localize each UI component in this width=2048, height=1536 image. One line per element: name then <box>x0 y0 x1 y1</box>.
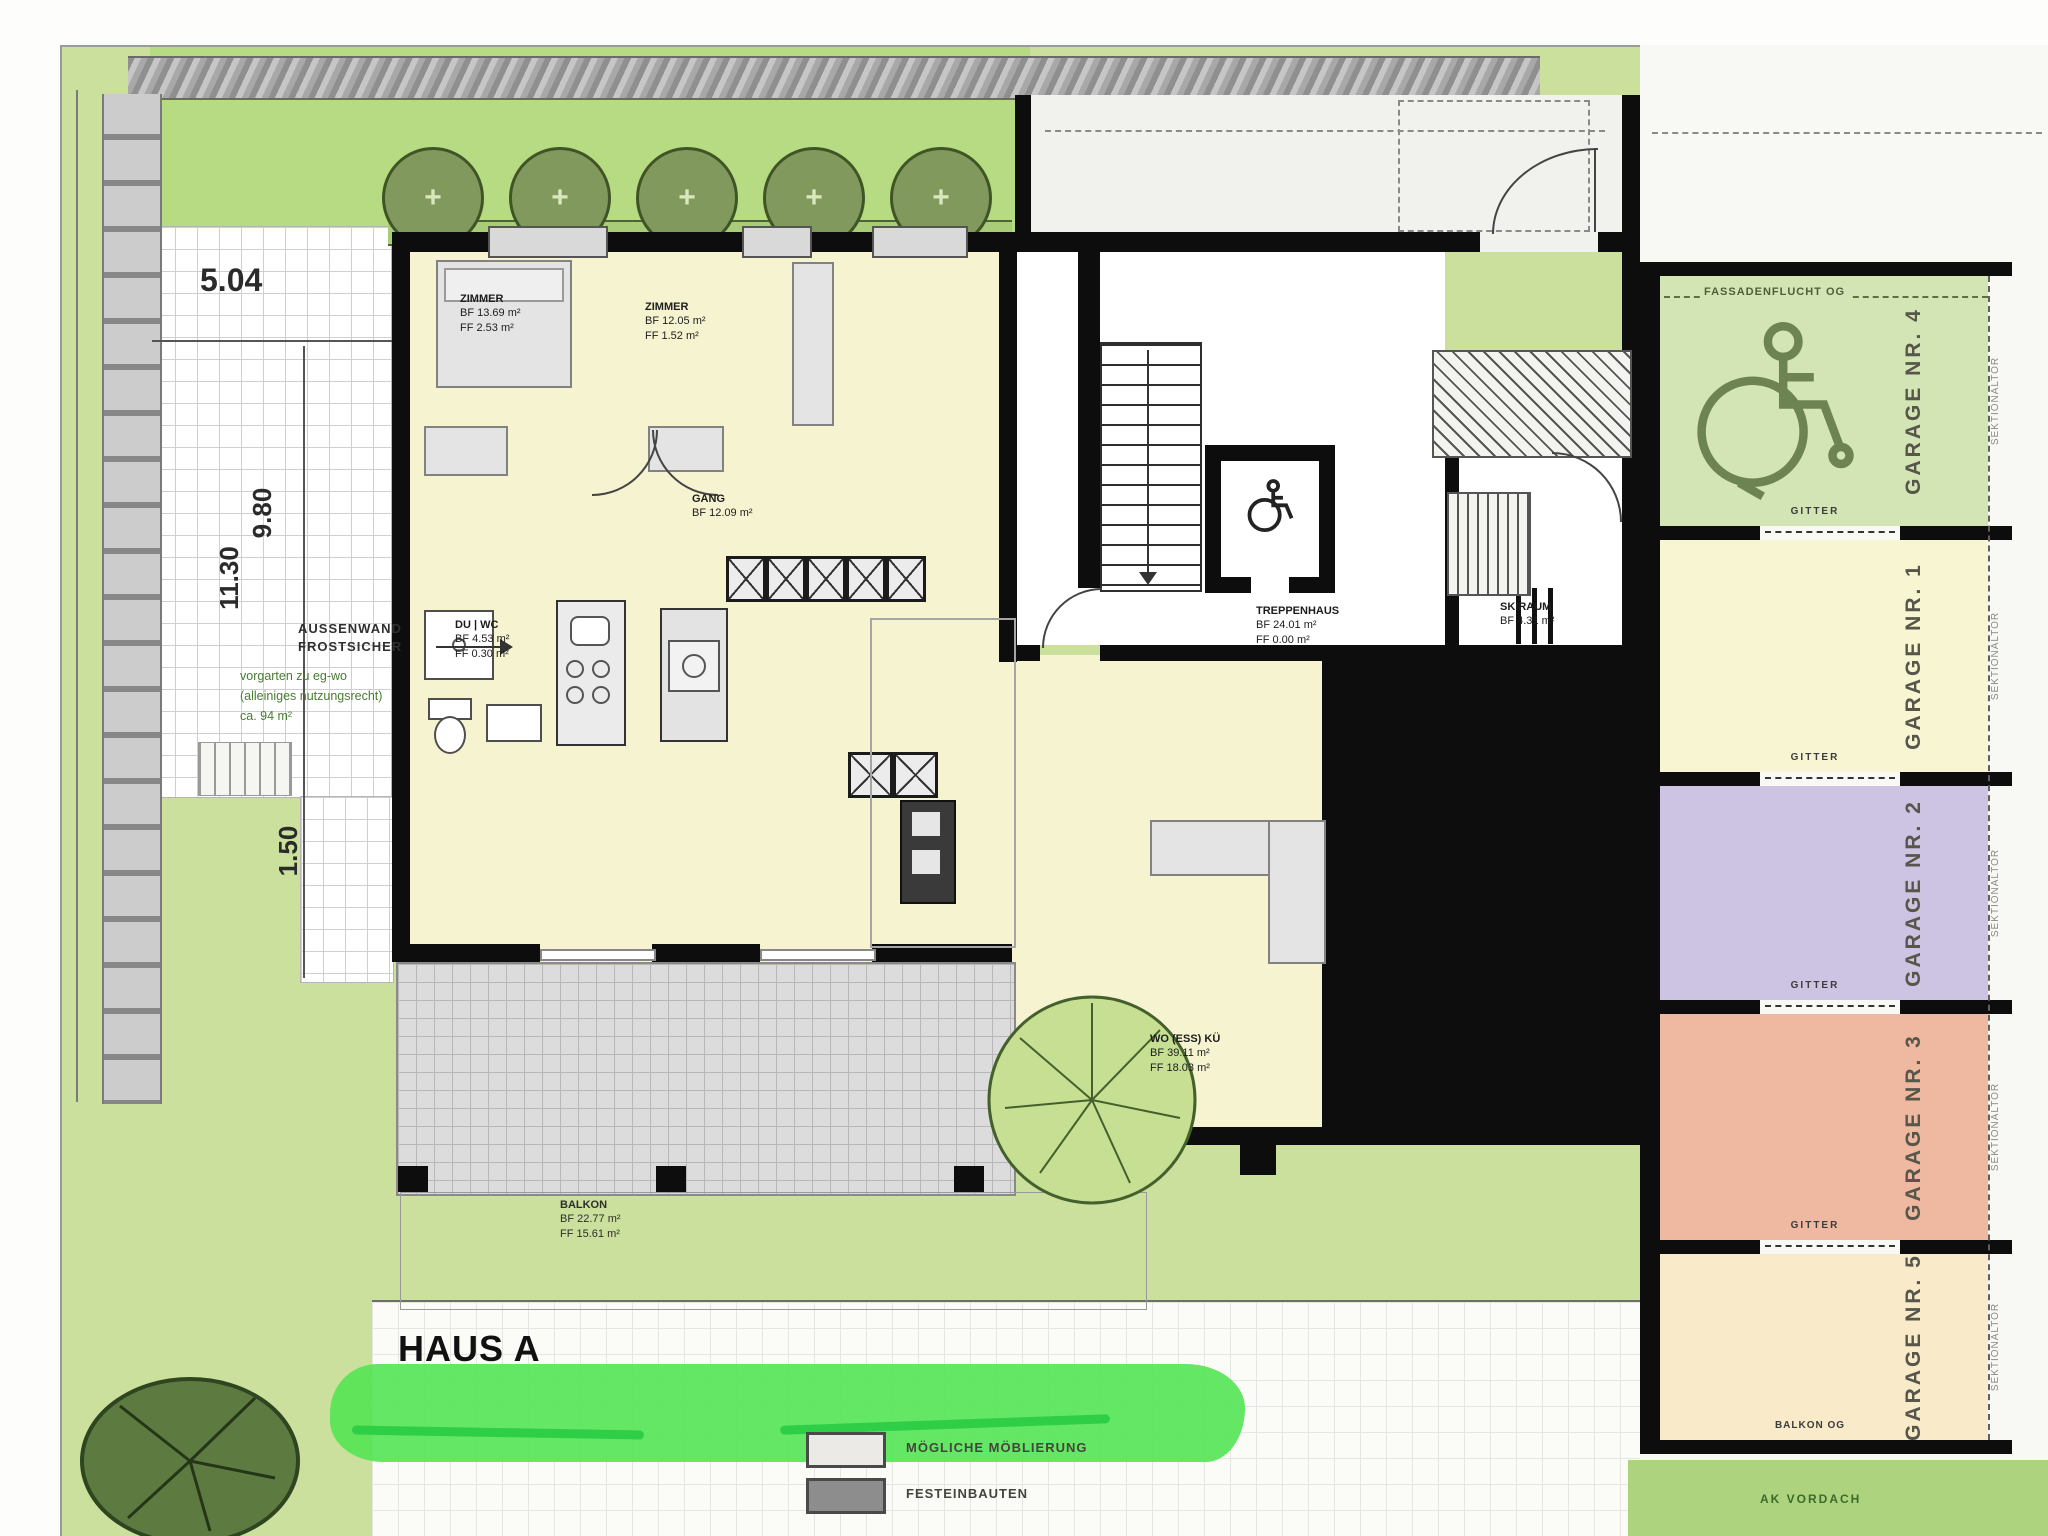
grate-hatch <box>1447 492 1531 596</box>
legend-label-fixed: FESTEINBAUTEN <box>906 1486 1028 1501</box>
shrub-icon <box>980 978 1205 1233</box>
room-bf: BF 13.69 m² <box>460 306 521 320</box>
wheelchair-icon <box>1243 478 1297 538</box>
window-south <box>760 949 876 961</box>
window-north <box>488 226 608 258</box>
sofa-chaise <box>1268 820 1326 964</box>
vorgarten-line2: (alleiniges nutzungsrecht) <box>240 686 382 706</box>
upper-floor-outline <box>870 618 1016 948</box>
room-bf: BF 39.11 m² <box>1150 1046 1220 1060</box>
room-bf: BF 12.09 m² <box>692 506 753 520</box>
garage-2 <box>1660 786 1988 1000</box>
garage-grate <box>1765 777 1895 779</box>
kitchen-sink <box>570 616 610 646</box>
fassadenflucht-label: FASSADENFLUCHT OG <box>1700 286 1849 298</box>
stove-burner <box>566 660 584 678</box>
living-pillar <box>1240 1145 1276 1175</box>
balcony-deck <box>396 962 1016 1196</box>
kitchen-unit <box>886 556 926 602</box>
garage-sep-stub <box>1640 1000 1760 1014</box>
room-ff: FF 15.61 m² <box>560 1227 621 1241</box>
floor-plan-canvas: + + + + + <box>0 0 2048 1536</box>
garage-3 <box>1660 1014 1988 1240</box>
legend-swatch-fixed <box>806 1478 886 1514</box>
black-poche <box>1337 645 1640 1145</box>
elevator-door-gap <box>1251 577 1289 593</box>
highlighter-stroke <box>330 1364 1245 1462</box>
garage-wall-left <box>1640 262 1660 1454</box>
room-label-wohnen: WO (ESS) KÜ BF 39.11 m² FF 18.03 m² <box>1150 1032 1220 1075</box>
staircase <box>1100 342 1202 592</box>
room-name: ZIMMER <box>645 300 706 314</box>
wall-south-b <box>652 944 760 962</box>
room-name: SKIRAUM <box>1500 600 1554 614</box>
room-label-gang: GANG BF 12.09 m² <box>692 492 753 521</box>
wall-south-a <box>392 944 540 962</box>
room-ff: FF 1.52 m² <box>645 329 706 343</box>
ak-vordach-label: AK VORDACH <box>1760 1492 1861 1506</box>
room-name: DU | WC <box>455 618 509 632</box>
garage-label-4: GARAGE NR. 4 <box>1902 281 1928 521</box>
room-name: WO (ESS) KÜ <box>1150 1032 1220 1046</box>
window-north <box>872 226 968 258</box>
balcony-pillar <box>398 1166 428 1192</box>
wall-stairwell-west <box>999 232 1017 662</box>
wheelchair-icon <box>1688 318 1858 508</box>
vorgarten-line1: vorgarten zu eg-wo <box>240 666 382 686</box>
room-name: TREPPENHAUS <box>1256 604 1339 618</box>
entry-door-gap <box>1480 232 1598 252</box>
wall-west <box>392 232 410 962</box>
kitchen-unit <box>766 556 806 602</box>
kitchen-island <box>726 556 926 602</box>
washbasin <box>486 704 542 742</box>
wardrobe <box>792 262 834 426</box>
garage-label-5: GARAGE NR. 5 <box>1902 1227 1928 1467</box>
entry-door-leaf <box>1594 148 1596 232</box>
stove-burner <box>566 686 584 704</box>
aussenwand-line1: AUSSENWAND <box>298 620 402 638</box>
garage-wall-top <box>1640 262 2012 276</box>
garage-label-3: GARAGE NR. 3 <box>1902 1007 1928 1247</box>
garage-5 <box>1660 1254 1988 1440</box>
dim-line-horizontal <box>152 340 392 342</box>
room-ff: FF 0.30 m² <box>455 647 509 661</box>
dim-line-vertical <box>303 346 305 978</box>
stone-wall <box>102 94 162 1104</box>
stove-burner <box>592 686 610 704</box>
room-label-skiraum: SKIRAUM BF 4.31 m² <box>1500 600 1554 629</box>
legend-swatch-furnishing <box>806 1432 886 1468</box>
fassade-dash-top-right <box>1652 132 2042 134</box>
gitter-label: GITTER <box>1770 980 1860 991</box>
garage-grate <box>1765 1005 1895 1007</box>
room-label-duwc: DU | WC BF 4.53 m² FF 0.30 m² <box>455 618 509 661</box>
stair-arrowhead <box>1139 572 1157 585</box>
oven-dial <box>682 654 706 678</box>
room-bf: BF 4.53 m² <box>455 632 509 646</box>
room-name: ZIMMER <box>460 292 521 306</box>
vorgarten-line3: ca. 94 m² <box>240 706 382 726</box>
aussenwand-line2: FROSTSICHER <box>298 638 402 656</box>
garage-label-2: GARAGE NR. 2 <box>1902 773 1928 1013</box>
terrace-grid-lower <box>300 796 394 983</box>
window-north <box>742 226 812 258</box>
room-bf: BF 24.01 m² <box>1256 618 1339 632</box>
tree-dark-icon <box>80 1366 340 1536</box>
legend-label-furnishing: MÖGLICHE MÖBLIERUNG <box>906 1440 1088 1455</box>
room-label-zimmer-1: ZIMMER BF 13.69 m² FF 2.53 m² <box>460 292 521 335</box>
toilet-bowl <box>434 716 466 754</box>
gitter-label: GITTER <box>1770 506 1860 517</box>
sektionaltor-label: SEKTIONALTOR <box>1990 1027 2010 1227</box>
room-bf: BF 12.05 m² <box>645 314 706 328</box>
garage-sep-stub <box>1640 1240 1760 1254</box>
aussenwand-note: AUSSENWAND FROSTSICHER <box>298 620 402 656</box>
room-bf: BF 4.31 m² <box>1500 614 1554 628</box>
dim-width: 5.04 <box>200 262 262 299</box>
entry-ramp-hatch <box>1432 350 1632 458</box>
dim-depth-a: 9.80 <box>247 475 273 551</box>
room-ff: FF 2.53 m² <box>460 321 521 335</box>
garage-grate <box>1765 1245 1895 1247</box>
dim-depth-b: 11.30 <box>214 533 240 623</box>
stair-direction-line <box>1147 350 1149 576</box>
gitter-label: GITTER <box>1770 1220 1860 1231</box>
garage-sep-stub <box>1640 526 1760 540</box>
kitchen-unit <box>846 556 886 602</box>
stove-burner <box>592 660 610 678</box>
room-ff: FF 18.03 m² <box>1150 1061 1220 1075</box>
room-label-treppenhaus: TREPPENHAUS BF 24.01 m² FF 0.00 m² <box>1256 604 1339 647</box>
room-label-zimmer-2: ZIMMER BF 12.05 m² FF 1.52 m² <box>645 300 706 343</box>
desk <box>424 426 508 476</box>
outdoor-steps <box>198 742 292 796</box>
room-label-balkon: BALKON BF 22.77 m² FF 15.61 m² <box>560 1198 621 1241</box>
kitchen-unit <box>806 556 846 602</box>
wall-stair-flank <box>1078 252 1100 588</box>
balkon-og-label: BALKON OG <box>1730 1420 1890 1431</box>
sektionaltor-label: SEKTIONALTOR <box>1990 301 2010 501</box>
garage-sep-stub <box>1640 772 1760 786</box>
wall-stairwell-south-b <box>1100 645 1345 661</box>
balcony-pillar <box>656 1166 686 1192</box>
vorgarten-note: vorgarten zu eg-wo (alleiniges nutzungsr… <box>240 666 382 726</box>
garage-wall-bottom <box>1640 1440 2012 1454</box>
garage-label-1: GARAGE NR. 1 <box>1902 536 1928 776</box>
sektionaltor-label: SEKTIONALTOR <box>1990 1247 2010 1447</box>
garage-grate <box>1765 531 1895 533</box>
dim-offset: 1.50 <box>273 813 299 889</box>
sektionaltor-label: SEKTIONALTOR <box>1990 556 2010 756</box>
gitter-label: GITTER <box>1770 752 1860 763</box>
room-name: BALKON <box>560 1198 621 1212</box>
sektionaltor-label: SEKTIONALTOR <box>1990 793 2010 993</box>
wall-courtyard-west <box>1015 95 1031 232</box>
room-name: GANG <box>692 492 753 506</box>
property-line <box>76 90 78 1102</box>
window-south <box>540 949 656 961</box>
gravel-strip-top <box>128 56 1540 100</box>
room-ff: FF 0.00 m² <box>1256 633 1339 647</box>
room-bf: BF 22.77 m² <box>560 1212 621 1226</box>
garage-1 <box>1660 540 1988 772</box>
kitchen-unit <box>726 556 766 602</box>
